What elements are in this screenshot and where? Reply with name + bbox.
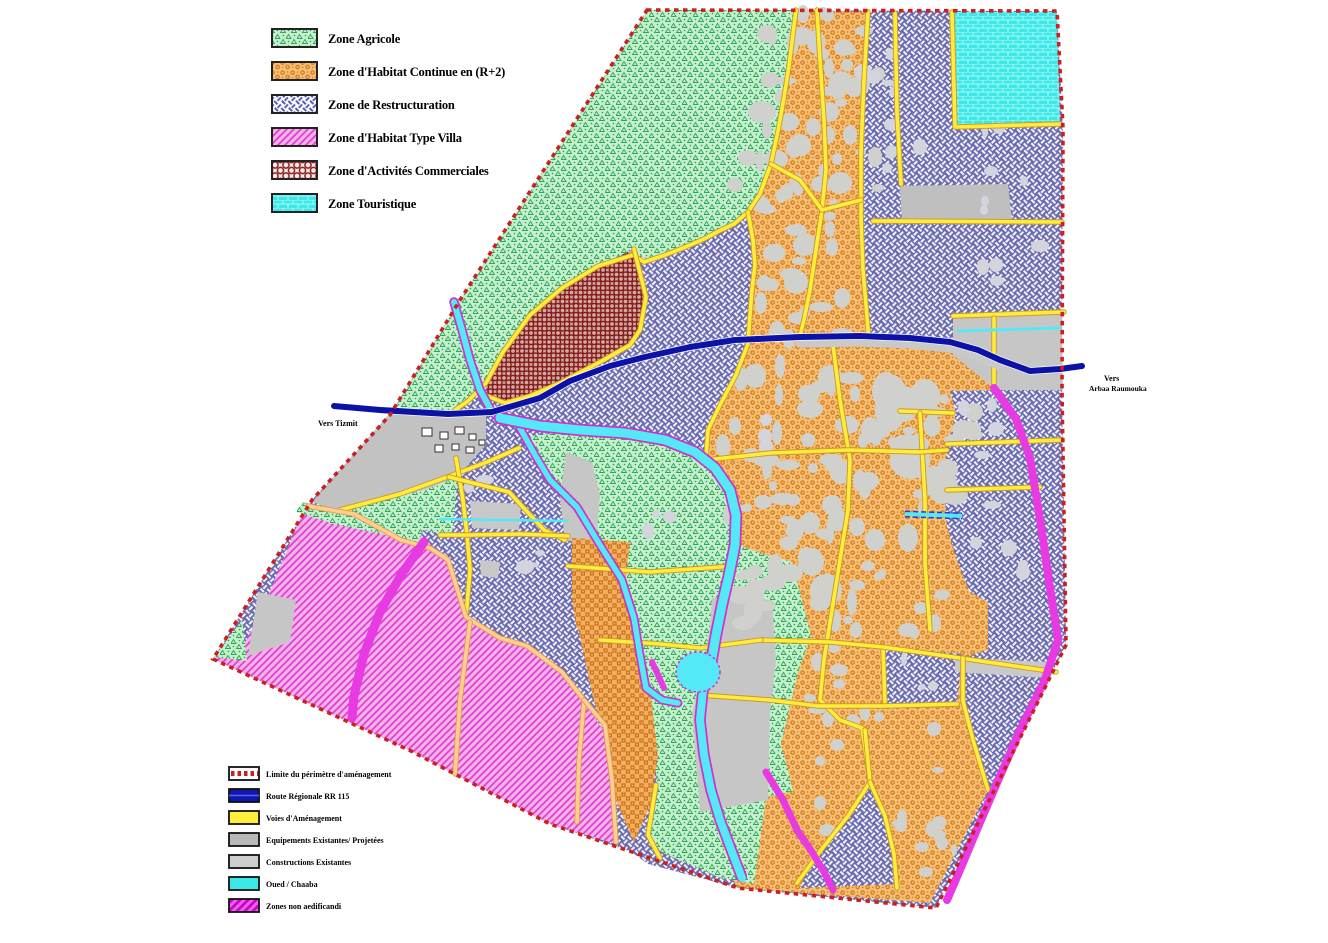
svg-text:Limite du périmètre d'aménagem: Limite du périmètre d'aménagement [266, 770, 392, 779]
svg-text:Equipements Existantes/ Projet: Equipements Existantes/ Projetées [266, 836, 384, 845]
svg-text:Zone d'Habitat Continue en (R+: Zone d'Habitat Continue en (R+2) [328, 65, 505, 79]
svg-text:Zone d'Activités Commerciales: Zone d'Activités Commerciales [328, 164, 489, 178]
svg-text:Vers: Vers [1104, 374, 1119, 383]
svg-text:Zone d'Habitat Type Villa: Zone d'Habitat Type Villa [328, 131, 463, 145]
svg-text:Zones non aedificandi: Zones non aedificandi [266, 902, 342, 911]
svg-text:Voies d'Aménagement: Voies d'Aménagement [266, 814, 342, 823]
svg-text:Zone Agricole: Zone Agricole [328, 32, 401, 46]
svg-text:Zone de Restructuration: Zone de Restructuration [328, 98, 455, 112]
svg-text:Zone Touristique: Zone Touristique [328, 197, 417, 211]
svg-text:Vers Tizmit: Vers Tizmit [318, 419, 358, 428]
svg-text:Oued / Chaaba: Oued / Chaaba [266, 880, 318, 889]
svg-text:Route Régionale RR 115: Route Régionale RR 115 [266, 792, 349, 801]
svg-text:Arbaa Raumouka: Arbaa Raumouka [1089, 384, 1147, 393]
svg-text:Constructions Existantes: Constructions Existantes [266, 858, 351, 867]
